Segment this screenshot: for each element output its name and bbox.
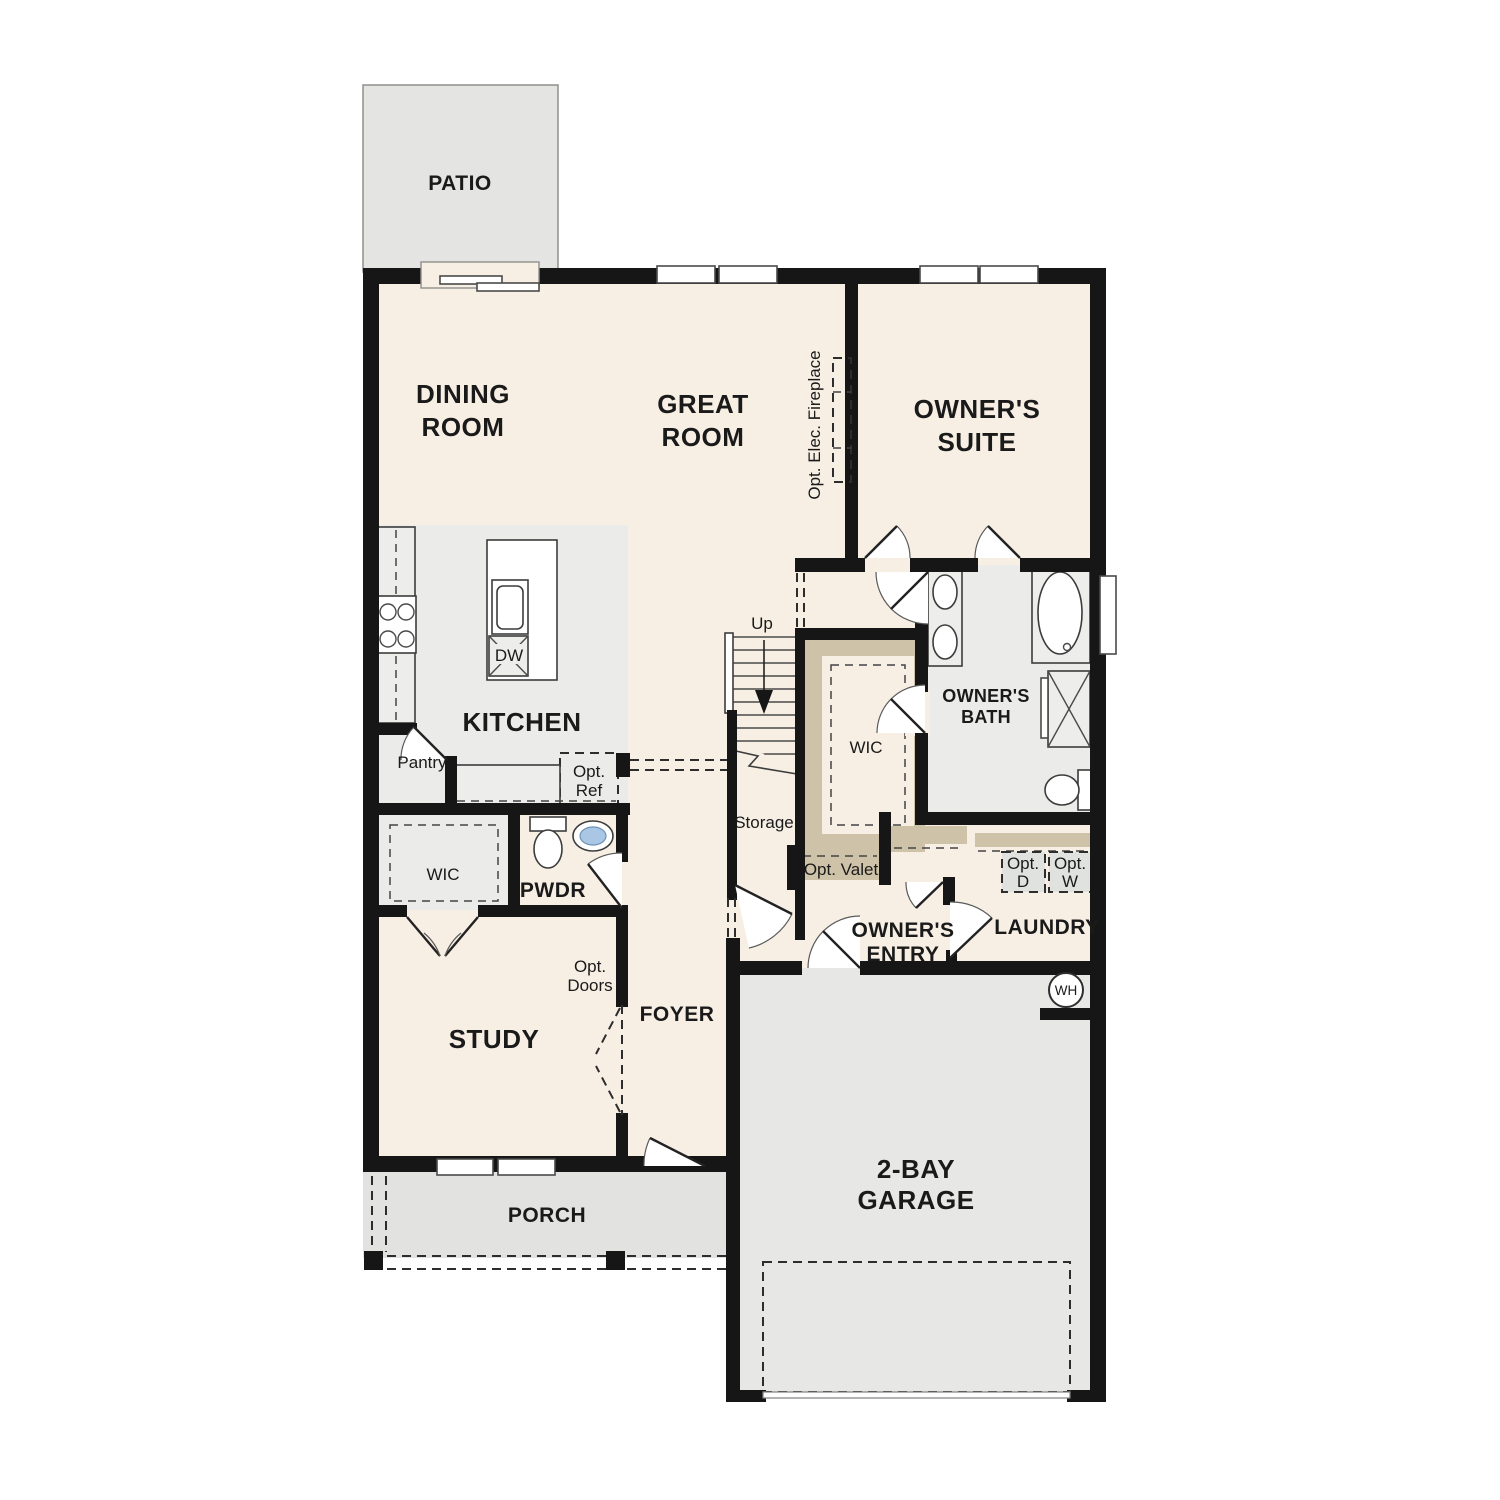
wall-stairs-left	[727, 710, 737, 880]
label-opt-doors-1: Opt.	[574, 957, 606, 976]
wall-suite-bottom-c	[1020, 558, 1090, 572]
label-garage-2: GARAGE	[857, 1185, 974, 1215]
wall-exterior-right	[1090, 268, 1106, 1402]
label-great-1: GREAT	[657, 389, 749, 419]
label-entry-2: ENTRY	[867, 943, 940, 966]
wall-pantry-right	[445, 756, 457, 803]
label-opt-w-1: Opt.	[1054, 854, 1086, 873]
label-opt-w-2: W	[1062, 872, 1078, 891]
label-dining-2: ROOM	[422, 412, 505, 442]
wall-study-top-b	[478, 905, 628, 917]
label-entry-1: OWNER'S	[852, 919, 955, 942]
wall-study-right-b	[616, 1113, 628, 1157]
floor-plan-page: PATIO DINING ROOM GREAT ROOM OWNER'S SUI…	[0, 0, 1500, 1500]
corridor-shelf	[891, 826, 967, 844]
label-suite-1: OWNER'S	[914, 394, 1041, 424]
label-porch: PORCH	[508, 1204, 586, 1227]
wall-exterior-left	[363, 268, 379, 1172]
greatroom-window-1	[657, 266, 715, 283]
label-garage-1: 2-BAY	[877, 1154, 955, 1184]
vanity-sink-1	[933, 575, 957, 609]
shower-door	[1041, 678, 1048, 738]
label-bath-2: BATH	[961, 707, 1011, 727]
wall-wh-nook	[1040, 1008, 1092, 1020]
wall-suite-bottom-a	[795, 558, 865, 572]
island-sink	[497, 586, 523, 629]
wall-garage-bottom-b	[1067, 1390, 1106, 1402]
wall-wic-pwdr	[508, 815, 520, 917]
label-dining-1: DINING	[416, 379, 510, 409]
label-foyer: FOYER	[640, 1003, 715, 1026]
study-window-2	[498, 1159, 555, 1175]
wall-corridor-left	[879, 812, 891, 885]
label-opt-valet: Opt. Valet	[804, 860, 879, 879]
wall-garage-left	[726, 961, 740, 1402]
label-opt-d-2: D	[1017, 872, 1029, 891]
greatroom-window-2	[719, 266, 777, 283]
suite-window-1	[920, 266, 978, 283]
porch-post-left	[364, 1251, 383, 1270]
floor-plan-drawing: PATIO DINING ROOM GREAT ROOM OWNER'S SUI…	[0, 0, 1500, 1500]
wall-kitchen-south	[363, 803, 630, 815]
wall-corridor-laundry	[943, 877, 955, 905]
label-fireplace: Opt. Elec. Fireplace	[805, 350, 824, 499]
label-opt-ref-2: Ref	[576, 781, 603, 800]
label-suite-2: SUITE	[937, 427, 1016, 457]
wall-garage-bottom-a	[726, 1390, 766, 1402]
wall-stairs-right	[795, 632, 805, 940]
label-laundry: LAUNDRY	[994, 916, 1099, 939]
wall-study-right-a	[616, 917, 628, 1007]
wall-optref-stub	[616, 753, 630, 777]
label-storage: Storage	[734, 813, 794, 832]
wall-bath-left-b	[915, 733, 928, 815]
wall-valet-left	[787, 845, 800, 890]
label-patio: PATIO	[428, 172, 492, 195]
label-opt-doors-2: Doors	[567, 976, 612, 995]
wall-storage-stub	[727, 878, 737, 900]
label-wic-owner: WIC	[849, 738, 882, 757]
study-wic-floor	[378, 815, 508, 910]
wall-garage-top-a	[740, 961, 802, 975]
tub-window	[1100, 576, 1116, 654]
label-bath-1: OWNER'S	[942, 686, 1029, 706]
label-pwdr: PWDR	[520, 879, 586, 902]
pwdr-toilet-bowl	[534, 830, 562, 868]
pwdr-sink-basin	[580, 827, 606, 845]
label-study: STUDY	[449, 1024, 540, 1054]
label-opt-d-1: Opt.	[1007, 854, 1039, 873]
patio-slider-panel-2	[477, 283, 539, 291]
toilet-bowl	[1045, 775, 1079, 805]
vanity-sink-2	[933, 625, 957, 659]
wall-bath-left-a	[915, 640, 928, 692]
label-wh: WH	[1055, 983, 1078, 998]
label-dw: DW	[495, 646, 523, 665]
label-kitchen: KITCHEN	[462, 707, 581, 737]
wall-foyer-stub	[726, 938, 740, 963]
suite-window-2	[980, 266, 1038, 283]
laundry-shelf	[975, 833, 1090, 847]
pwdr-toilet-tank	[530, 817, 566, 831]
label-wic-study: WIC	[426, 865, 459, 884]
stair-handrail	[725, 633, 733, 713]
wall-study-top-a	[363, 905, 407, 917]
wall-wic-top	[795, 628, 928, 640]
porch-post-mid	[606, 1251, 625, 1270]
label-great-2: ROOM	[662, 422, 745, 452]
study-window-1	[437, 1159, 493, 1175]
garage-door-line	[763, 1392, 1070, 1398]
label-opt-ref-1: Opt.	[573, 762, 605, 781]
label-up: Up	[751, 614, 773, 633]
wall-bath-bottom	[915, 812, 1090, 825]
bathtub	[1038, 572, 1082, 654]
label-pantry: Pantry	[397, 753, 447, 772]
